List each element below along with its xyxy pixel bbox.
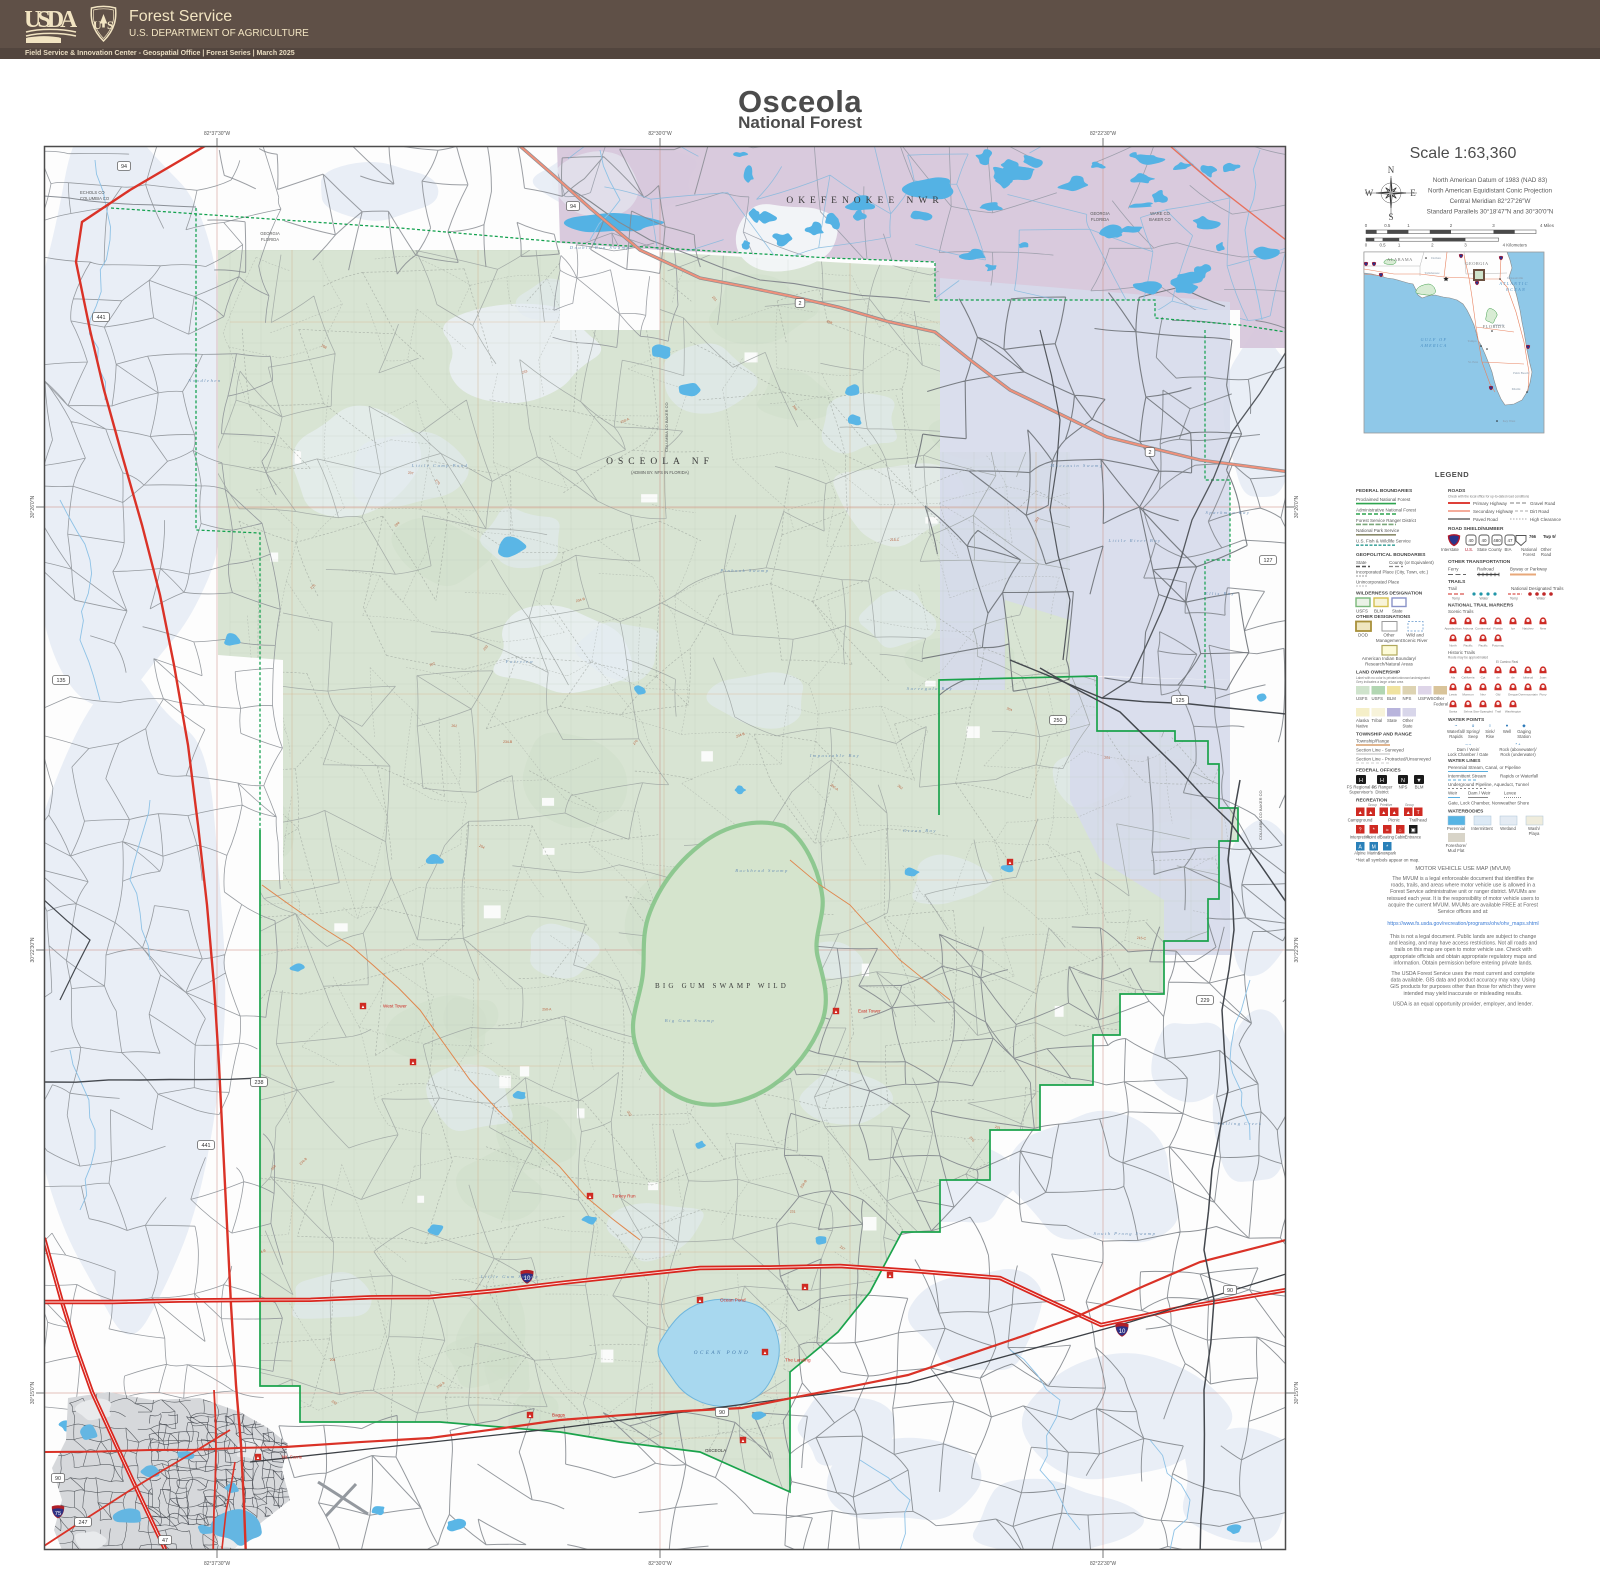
svg-text:Other: Other <box>1403 718 1414 723</box>
svg-text:Historic Trails: Historic Trails <box>1448 650 1476 655</box>
svg-text:Rock (underwater): Rock (underwater) <box>1500 752 1536 757</box>
svg-text:GIS products for purposes othe: GIS products for purposes other than tho… <box>1390 984 1536 990</box>
svg-text:Route may be approximated: Route may be approximated <box>1448 656 1488 660</box>
svg-text:Dam / Weir: Dam / Weir <box>1468 791 1491 796</box>
svg-text:Railroad: Railroad <box>1477 567 1494 572</box>
svg-text:acquire the current MVUM. MVUM: acquire the current MVUM. MVUMs are avai… <box>1388 902 1538 908</box>
svg-text:0: 0 <box>1365 223 1368 228</box>
svg-text:WATER POINTS: WATER POINTS <box>1448 717 1485 723</box>
svg-text:Ice: Ice <box>1511 627 1515 631</box>
svg-text:Research/Natural Areas: Research/Natural Areas <box>1365 662 1414 667</box>
svg-text:Weir: Weir <box>1448 791 1458 796</box>
svg-text:Group: Group <box>1405 803 1414 807</box>
svg-text:Old: Old <box>1496 693 1501 697</box>
svg-text:NPS: NPS <box>1403 696 1412 701</box>
svg-text:Arizona: Arizona <box>1463 627 1474 631</box>
svg-text:Secondary Highway: Secondary Highway <box>1473 509 1514 514</box>
svg-text:NATIONAL TRAIL MARKERS: NATIONAL TRAIL MARKERS <box>1448 603 1514 609</box>
svg-text:4 Kilometers: 4 Kilometers <box>1503 243 1528 248</box>
svg-text:Selma: Selma <box>1464 710 1473 714</box>
svg-text:Native: Native <box>1356 724 1369 729</box>
svg-text:roads, trails, and areas where: roads, trails, and areas where motor veh… <box>1391 883 1536 889</box>
svg-text:Trail: Trail <box>1495 710 1501 714</box>
svg-text:Gravel Road: Gravel Road <box>1530 501 1556 506</box>
svg-text:OCEAN: OCEAN <box>1506 287 1526 292</box>
svg-text:Pacific: Pacific <box>1478 644 1488 648</box>
svg-text:The MVUM is a legal enforceabl: The MVUM is a legal enforceable document… <box>1392 876 1534 882</box>
svg-text:0.5: 0.5 <box>1380 243 1387 248</box>
svg-text:Rapids or Waterfall: Rapids or Waterfall <box>1500 774 1538 779</box>
svg-text:Juan: Juan <box>1540 676 1547 680</box>
svg-text:Cpt: Cpt <box>1481 676 1486 680</box>
svg-text:40: 40 <box>1481 538 1487 543</box>
svg-text:USFS: USFS <box>1356 609 1368 614</box>
svg-text:Primary Highway: Primary Highway <box>1473 501 1508 506</box>
svg-text:Wetland: Wetland <box>1500 826 1516 831</box>
svg-text:and leasing, and may have acce: and leasing, and may have access restric… <box>1389 941 1537 947</box>
svg-text:U.S.: U.S. <box>1465 547 1473 552</box>
svg-text:Potomac: Potomac <box>1492 644 1505 648</box>
svg-text:Service offices and at:: Service offices and at: <box>1438 909 1489 915</box>
svg-text:Wild and: Wild and <box>1406 633 1424 638</box>
svg-text:40: 40 <box>1468 538 1474 543</box>
svg-text:Forest: Forest <box>1523 552 1536 557</box>
svg-text:Natchez: Natchez <box>1522 627 1534 631</box>
svg-text:○: ○ <box>1489 723 1492 728</box>
svg-text:0: 0 <box>1365 243 1368 248</box>
svg-text:AMERICA: AMERICA <box>1419 343 1447 348</box>
svg-text:2: 2 <box>1450 223 1453 228</box>
svg-text:appropriate officials and obta: appropriate officials and obtain appropr… <box>1390 954 1537 960</box>
svg-text:NPS: NPS <box>1399 785 1408 790</box>
svg-text:Central Meridian 82°27′26″W: Central Meridian 82°27′26″W <box>1450 197 1531 205</box>
svg-text:Station: Station <box>1517 734 1531 739</box>
svg-text:Intermittent: Intermittent <box>1471 826 1493 831</box>
svg-text:St. Pete: St. Pete <box>1468 360 1479 364</box>
svg-text:H: H <box>1380 778 1384 784</box>
svg-text:▲: ▲ <box>1358 810 1363 816</box>
svg-text:T: T <box>1417 810 1420 816</box>
svg-text:Ala: Ala <box>1451 676 1456 680</box>
svg-text:Star-Spangled: Star-Spangled <box>1473 710 1493 714</box>
svg-text:N: N <box>1388 165 1395 175</box>
svg-text:North American Datum of 1983 (: North American Datum of 1983 (NAD 83) <box>1433 177 1547 184</box>
svg-text:Santa: Santa <box>1449 710 1457 714</box>
svg-text:Intermittent Stream: Intermittent Stream <box>1448 774 1487 779</box>
svg-text:de: de <box>1496 676 1500 680</box>
svg-text:State: State <box>1477 547 1488 552</box>
svg-text:ROAD SHIELD/NUMBER: ROAD SHIELD/NUMBER <box>1448 526 1504 532</box>
svg-text:Other: Other <box>1434 696 1445 701</box>
svg-text:Group: Group <box>1368 803 1377 807</box>
svg-text:Continental: Continental <box>1475 627 1491 631</box>
svg-text:Temp: Temp <box>1452 597 1460 601</box>
svg-text:State: State <box>1356 560 1367 565</box>
svg-text:*: * <box>1373 828 1375 834</box>
svg-text:▣: ▣ <box>1411 828 1416 834</box>
svg-text:Playa: Playa <box>1529 831 1540 836</box>
svg-text:Check with the local office fo: Check with the local office for up-to-da… <box>1448 495 1529 499</box>
svg-text:BIA: BIA <box>1505 547 1512 552</box>
svg-text:BLM: BLM <box>1387 696 1396 701</box>
svg-text:3: 3 <box>1464 243 1467 248</box>
svg-text:ALABAMA: ALABAMA <box>1387 257 1413 262</box>
svg-text:Perennial: Perennial <box>1447 826 1465 831</box>
svg-text:Trailhead: Trailhead <box>1409 818 1427 823</box>
svg-text:USFS: USFS <box>1372 696 1384 701</box>
svg-text:National Designated Trails: National Designated Trails <box>1511 586 1564 591</box>
svg-text:GEORGIA: GEORGIA <box>1465 261 1489 266</box>
svg-text:766: 766 <box>1529 534 1537 539</box>
svg-text:2: 2 <box>1431 243 1434 248</box>
svg-text:Forest Service administrative: Forest Service administrative unit or ra… <box>1390 889 1536 895</box>
svg-text:Overmountain: Overmountain <box>1518 693 1538 697</box>
svg-text:North American Equidistant Con: North American Equidistant Conic Project… <box>1428 188 1552 195</box>
svg-text:Section Line - Protracted/Unsu: Section Line - Protracted/Unsurveyed <box>1356 757 1431 762</box>
svg-text:FEDERAL OFFICES: FEDERAL OFFICES <box>1356 768 1401 774</box>
svg-text:Unincorporated Place: Unincorporated Place <box>1356 580 1400 585</box>
svg-text:Scenic River: Scenic River <box>1402 638 1428 643</box>
svg-text:Gate, Lock Chamber, Nonweather: Gate, Lock Chamber, Nonweather Shore <box>1448 801 1530 806</box>
svg-text:Temp: Temp <box>1510 597 1518 601</box>
svg-text:Grey indicates a large urban a: Grey indicates a large urban area <box>1356 680 1404 684</box>
svg-text:reissued each year. It is the: reissued each year. It is the responsibi… <box>1387 896 1540 902</box>
svg-text:480: 480 <box>1493 538 1501 543</box>
svg-text:BLM: BLM <box>1374 609 1384 614</box>
svg-text:GEOPOLITICAL BOUNDARIES: GEOPOLITICAL BOUNDARIES <box>1356 552 1426 558</box>
svg-text:FEDERAL BOUNDARIES: FEDERAL BOUNDARIES <box>1356 488 1413 494</box>
svg-text:State: State <box>1387 718 1398 723</box>
svg-text:data available. GIS data and p: data available. GIS data and product acc… <box>1391 978 1536 984</box>
svg-text:4 Miles: 4 Miles <box>1540 223 1555 228</box>
svg-text:de: de <box>1511 676 1515 680</box>
svg-text:Seep: Seep <box>1468 734 1479 739</box>
svg-text:State: State <box>1403 724 1414 729</box>
svg-text:Management: Management <box>1376 638 1403 643</box>
svg-text:WATER LINES: WATER LINES <box>1448 758 1481 764</box>
svg-text:Supervisor's: Supervisor's <box>1349 790 1373 795</box>
svg-text:47: 47 <box>1507 538 1513 543</box>
svg-text:Perennial Stream, Canal, or Pi: Perennial Stream, Canal, or Pipeline <box>1448 765 1521 770</box>
svg-text:Tallahassee: Tallahassee <box>1424 271 1440 275</box>
svg-text:Pacific: Pacific <box>1463 644 1473 648</box>
svg-text:◆: ◆ <box>1522 723 1526 728</box>
svg-text:Mormon: Mormon <box>1462 693 1474 697</box>
svg-text:Standard Parallels 30°18′47″N: Standard Parallels 30°18′47″N and 30°30′… <box>1427 208 1554 216</box>
svg-text:USFWS: USFWS <box>1418 696 1434 701</box>
svg-text:California: California <box>1461 676 1474 680</box>
svg-text:DOD: DOD <box>1358 633 1369 638</box>
svg-text:American Indian Boundary/: American Indian Boundary/ <box>1362 656 1417 661</box>
svg-text:3: 3 <box>1492 223 1495 228</box>
svg-text:Picnic: Picnic <box>1388 818 1400 823</box>
svg-text:GULF OF: GULF OF <box>1421 337 1448 342</box>
svg-text:0.5: 0.5 <box>1384 223 1391 228</box>
svg-text:Campground: Campground <box>1348 818 1373 823</box>
svg-text:WILDERNESS DESIGNATION: WILDERNESS DESIGNATION <box>1356 591 1423 597</box>
svg-text:*Not all symbols appear on map: *Not all symbols appear on map. <box>1356 858 1419 863</box>
svg-text:Trail: Trail <box>1448 586 1457 591</box>
svg-text:Nez: Nez <box>1480 693 1486 697</box>
svg-text:USDA is an equal opportunity p: USDA is an equal opportunity provider, e… <box>1393 1001 1533 1007</box>
svg-text:North: North <box>1449 644 1457 648</box>
svg-text:State: State <box>1392 609 1403 614</box>
svg-text:Underground Pipeline, Aqueduct: Underground Pipeline, Aqueduct, Tunnel <box>1448 782 1529 787</box>
svg-text:Twp 9/: Twp 9/ <box>1543 534 1557 539</box>
svg-text:Dothan: Dothan <box>1431 256 1441 260</box>
svg-text:▲: ▲ <box>1406 810 1411 816</box>
svg-text:Palm Beach: Palm Beach <box>1513 371 1529 375</box>
svg-text:●: ● <box>1506 723 1509 728</box>
svg-text:¬ ¬: ¬ ¬ <box>1465 742 1471 747</box>
svg-text:Section Line - Surveyed: Section Line - Surveyed <box>1356 748 1404 753</box>
svg-text:H: H <box>1359 778 1363 784</box>
svg-text:▼: ▼ <box>1416 778 1421 784</box>
svg-text:MOTOR VEHICLE USE MAP (MVUM): MOTOR VEHICLE USE MAP (MVUM) <box>1415 866 1510 872</box>
svg-text:Federal: Federal <box>1434 702 1449 707</box>
svg-text:Primitive: Primitive <box>1380 803 1392 807</box>
svg-text:Interstate: Interstate <box>1441 547 1460 552</box>
svg-text:intended may yield inaccurate: intended may yield inaccurate or mislead… <box>1403 991 1522 997</box>
svg-text:▲: ▲ <box>1392 810 1397 816</box>
svg-text:ROADS: ROADS <box>1448 488 1466 494</box>
svg-text:OTHER DESIGNATIONS: OTHER DESIGNATIONS <box>1356 614 1411 620</box>
svg-text:1: 1 <box>1407 223 1410 228</box>
svg-text:Pony: Pony <box>1539 693 1547 697</box>
svg-text:TOWNSHIP AND RANGE: TOWNSHIP AND RANGE <box>1356 732 1413 738</box>
svg-text:The USDA Forest Service uses t: The USDA Forest Service uses the most cu… <box>1391 971 1534 977</box>
svg-text:Oregon: Oregon <box>1508 693 1519 697</box>
svg-text:Dirt Road: Dirt Road <box>1530 509 1550 514</box>
svg-text:o: o <box>1472 723 1475 728</box>
svg-text:Water: Water <box>1480 597 1490 601</box>
svg-text:Forest Service Ranger District: Forest Service Ranger District <box>1356 518 1417 523</box>
svg-text:trails on this map are open to: trails on this map are open to motor veh… <box>1394 947 1531 953</box>
svg-text:https://www.fs.usda.gov/recrea: https://www.fs.usda.gov/recreation/progr… <box>1387 921 1538 927</box>
svg-text:⌂: ⌂ <box>1399 828 1402 834</box>
svg-text:N: N <box>1401 778 1405 784</box>
svg-text:WATERBODIES: WATERBODIES <box>1448 809 1484 815</box>
svg-text:Scale 1:63,360: Scale 1:63,360 <box>1410 145 1517 162</box>
svg-text:~: ~ <box>1455 723 1458 728</box>
svg-text:Rapids: Rapids <box>1449 734 1462 739</box>
svg-text:Scenic Trails: Scenic Trails <box>1448 609 1474 614</box>
svg-text:Mud Flat: Mud Flat <box>1448 848 1466 853</box>
svg-text:LAND OWNERSHIP: LAND OWNERSHIP <box>1356 670 1401 676</box>
svg-text:Tampa: Tampa <box>1468 339 1477 343</box>
svg-text:Boating: Boating <box>1380 835 1395 840</box>
svg-text:Key West: Key West <box>1503 419 1516 423</box>
svg-text:Lock Chamber / Gate: Lock Chamber / Gate <box>1448 752 1489 757</box>
svg-text:Florida: Florida <box>1493 627 1503 631</box>
svg-text:* +: * + <box>1515 742 1521 747</box>
svg-text:▲: ▲ <box>1368 810 1373 816</box>
svg-text:Washington: Washington <box>1505 710 1522 714</box>
svg-text:?: ? <box>1359 828 1362 834</box>
svg-text:County: County <box>1488 547 1502 552</box>
svg-text:▲: ▲ <box>1381 810 1386 816</box>
svg-text:Entrance: Entrance <box>1405 835 1422 840</box>
svg-text:LEGEND: LEGEND <box>1435 470 1469 479</box>
svg-text:≈: ≈ <box>1386 828 1389 834</box>
svg-text:Appalachian: Appalachian <box>1444 627 1461 631</box>
svg-text:USFS: USFS <box>1356 696 1368 701</box>
svg-text:ATLANTIC: ATLANTIC <box>1498 281 1528 286</box>
svg-text:Jacksonville: Jacksonville <box>1507 276 1524 280</box>
svg-text:Administrative National Forest: Administrative National Forest <box>1356 507 1417 512</box>
svg-text:U.S. Fish & Wildlife Service: U.S. Fish & Wildlife Service <box>1356 539 1411 544</box>
svg-text:County (or Equivalent): County (or Equivalent) <box>1389 560 1434 565</box>
svg-text:Incorporated Place (City, Town: Incorporated Place (City, Town, etc.) <box>1356 570 1429 575</box>
svg-text:Tribal: Tribal <box>1372 718 1383 723</box>
svg-text:Township/Range: Township/Range <box>1356 739 1390 744</box>
svg-text:Miami: Miami <box>1512 387 1521 391</box>
svg-text:Snowpark: Snowpark <box>1378 851 1397 856</box>
svg-text:New: New <box>1540 627 1547 631</box>
svg-text:El Camino Real: El Camino Real <box>1496 660 1518 664</box>
svg-text:Ferry: Ferry <box>1448 567 1459 572</box>
svg-text:Alaska: Alaska <box>1356 718 1370 723</box>
svg-text:information. Obtain permissio: information. Obtain permission before en… <box>1394 960 1533 966</box>
svg-text:Other: Other <box>1383 633 1395 638</box>
svg-text:Orlando: Orlando <box>1494 323 1505 327</box>
svg-text:Paved Road: Paved Road <box>1473 517 1498 522</box>
svg-text:This is not a legal document.: This is not a legal document. Public lan… <box>1390 934 1537 940</box>
svg-text:Road: Road <box>1541 552 1552 557</box>
svg-text:Well: Well <box>1503 729 1511 734</box>
svg-text:Water: Water <box>1537 597 1547 601</box>
svg-text:Byway or Parkway: Byway or Parkway <box>1510 567 1548 572</box>
svg-text:BLM: BLM <box>1415 785 1424 790</box>
svg-text:Proclaimed National Forest: Proclaimed National Forest <box>1356 497 1411 502</box>
svg-text:Levee: Levee <box>1504 791 1517 796</box>
svg-text:TRAILS: TRAILS <box>1448 579 1466 585</box>
svg-text:OTHER TRANSPORTATION: OTHER TRANSPORTATION <box>1448 559 1511 565</box>
svg-text:1: 1 <box>1398 243 1401 248</box>
svg-text:High Clearance: High Clearance <box>1530 517 1562 522</box>
svg-text:District: District <box>1375 790 1389 795</box>
svg-text:National Park Service: National Park Service <box>1356 528 1400 533</box>
svg-text:Alpine: Alpine <box>1354 851 1366 856</box>
svg-text:Iditarod: Iditarod <box>1523 676 1534 680</box>
svg-text:Lewis: Lewis <box>1449 693 1457 697</box>
svg-text:Rise: Rise <box>1486 734 1495 739</box>
